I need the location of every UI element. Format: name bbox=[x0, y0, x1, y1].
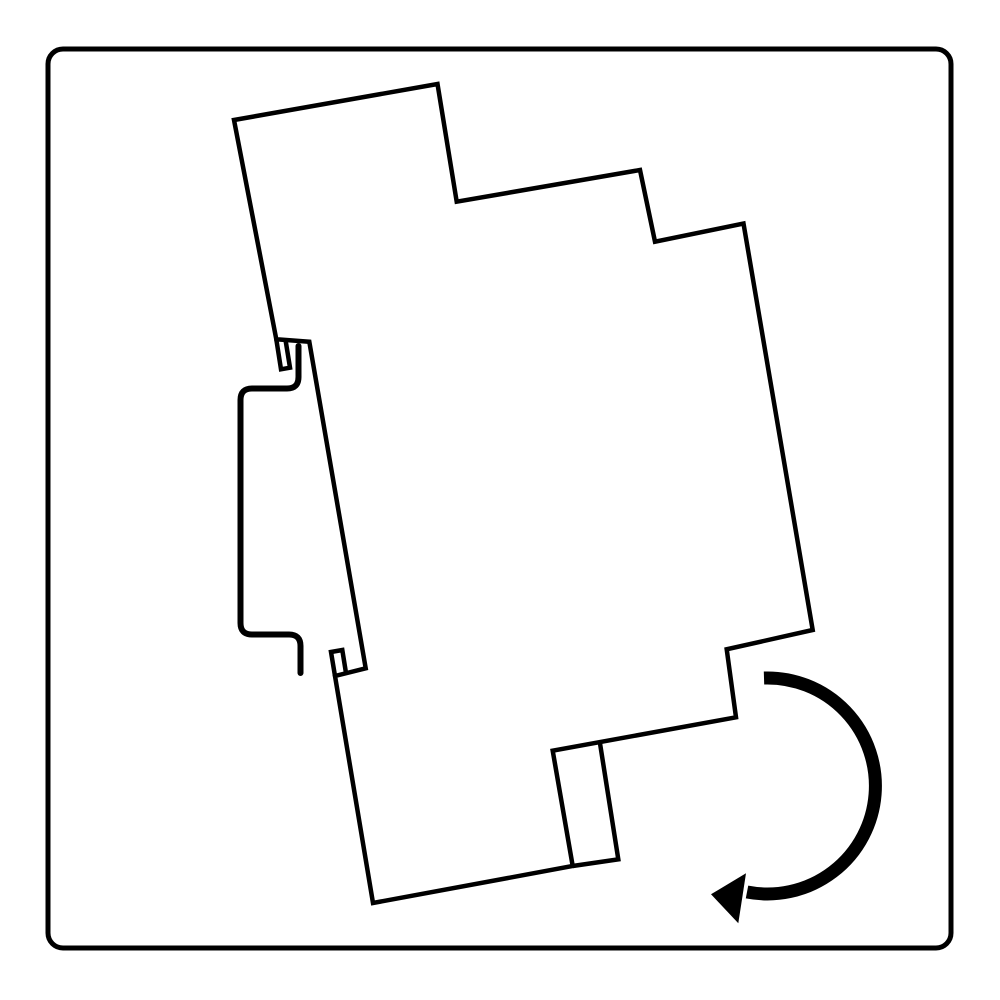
device-bottom-clip-lip bbox=[331, 650, 346, 676]
device-terminal-tab bbox=[573, 743, 619, 866]
din-rail-mounting-diagram bbox=[0, 0, 1000, 1000]
border-frame bbox=[48, 49, 951, 948]
din-rail-profile bbox=[241, 346, 301, 673]
diagram-page bbox=[0, 0, 1000, 1000]
device-top-hook-lip bbox=[276, 339, 290, 369]
device-outline bbox=[234, 84, 813, 903]
rotation-arrow-arc bbox=[747, 678, 875, 894]
rotation-arrow-head-icon bbox=[711, 873, 746, 923]
